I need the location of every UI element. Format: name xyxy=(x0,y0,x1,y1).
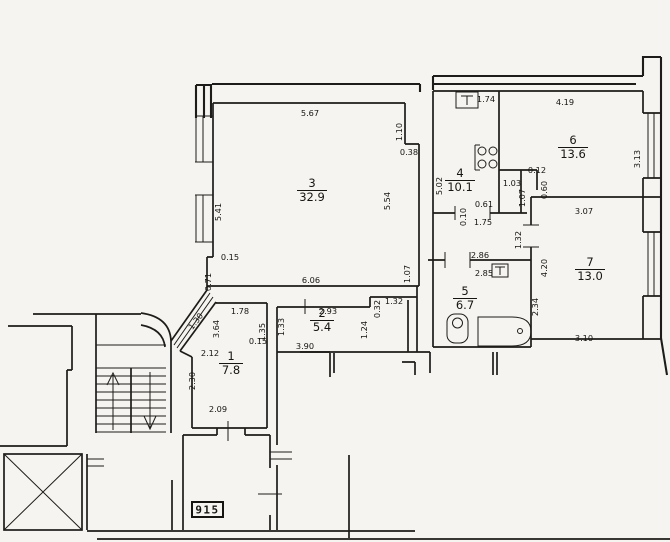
room-area-label: 6.7 xyxy=(456,298,474,312)
plan-number-stamp: 915 xyxy=(192,502,223,517)
room-area-label: 10.1 xyxy=(447,180,473,194)
dimension-label: 2.86 xyxy=(471,250,489,260)
elevator-cross xyxy=(4,454,82,530)
dimension-label: 5.54 xyxy=(382,192,392,210)
stair-up-arrow xyxy=(107,373,119,430)
dimension-label: 6.06 xyxy=(302,275,320,285)
stairwell-and-bottom-walls xyxy=(0,314,670,539)
room-number-label: 6 xyxy=(569,133,576,147)
dimension-label: 3.07 xyxy=(575,206,593,216)
dimension-label: 0.15 xyxy=(249,336,267,346)
bathtub-drain xyxy=(518,329,523,334)
dimension-label: 1.07 xyxy=(517,189,527,207)
room-number-label: 4 xyxy=(456,166,463,180)
dimension-label: 0.12 xyxy=(528,165,546,175)
dimension-label: 4.20 xyxy=(539,259,549,277)
dimension-label: 1.03 xyxy=(503,178,521,188)
staircase xyxy=(96,314,171,433)
room-area-label: 13.0 xyxy=(577,269,603,283)
dimension-label: 3.10 xyxy=(575,333,593,343)
dimension-label: 1.24 xyxy=(359,321,369,339)
room-number-label: 1 xyxy=(227,349,234,363)
dimension-label: 2.34 xyxy=(530,298,540,316)
dimension-label: 0.10 xyxy=(458,208,468,226)
room-number-label: 5 xyxy=(461,284,468,298)
dimension-label: 3.90 xyxy=(296,341,314,351)
dimension-label: 5.02 xyxy=(434,177,444,195)
room-area-label: 13.6 xyxy=(560,147,586,161)
dimension-label: 1.10 xyxy=(394,123,404,141)
window-symbols-right xyxy=(648,113,654,296)
room-number-label: 3 xyxy=(308,176,315,190)
stair-walls xyxy=(96,314,171,433)
dimension-label: 2.30 xyxy=(187,372,197,390)
dimension-label: 0.38 xyxy=(400,147,418,157)
window-symbols-left xyxy=(195,116,213,242)
dimension-label: 2.85 xyxy=(475,268,493,278)
dimension-label: 0.71 xyxy=(203,273,213,291)
dimension-label: 0.15 xyxy=(221,252,239,262)
floor-plan-scan: 915 5.671.100.385.415.540.150.716.061.07… xyxy=(0,0,670,542)
stove-burner xyxy=(489,160,497,168)
dimension-label: 2.09 xyxy=(209,404,227,414)
labels-layer: 5.671.100.385.415.540.150.716.061.071.74… xyxy=(186,94,642,414)
vent-shaft-glyph xyxy=(461,96,473,105)
toilet-tank xyxy=(453,318,463,328)
dimension-label: 3.64 xyxy=(211,320,221,338)
dimension-label: 0.32 xyxy=(372,300,382,318)
elevator-shaft xyxy=(4,454,82,530)
room-number-label: 7 xyxy=(586,255,593,269)
dimension-label: 0.61 xyxy=(475,199,493,209)
vent-shaft-glyph xyxy=(495,267,505,275)
stove-burner xyxy=(478,160,486,168)
stove-burner xyxy=(478,147,486,155)
dimension-label: 1.75 xyxy=(474,217,492,227)
dimension-label: 4.19 xyxy=(556,97,574,107)
dimension-label: 1.32 xyxy=(513,231,523,249)
room-number-label: 2 xyxy=(318,306,325,320)
dimension-label: 3.13 xyxy=(632,150,642,168)
room-area-label: 32.9 xyxy=(299,190,325,204)
stove-burner xyxy=(489,147,497,155)
dimension-label: 0.60 xyxy=(539,181,549,199)
stamp-number: 915 xyxy=(195,504,219,517)
dimension-label: 2.12 xyxy=(201,348,219,358)
dimension-label: 5.41 xyxy=(213,203,223,221)
bathtub-icon xyxy=(478,317,531,346)
dimension-label: 1.74 xyxy=(477,94,495,104)
floor-plan-canvas: 915 5.671.100.385.415.540.150.716.061.07… xyxy=(0,0,670,542)
dimension-label: 1.07 xyxy=(402,265,412,283)
room-area-label: 7.8 xyxy=(222,363,240,377)
dimension-label: 1.32 xyxy=(385,296,403,306)
dimension-label: 5.67 xyxy=(301,108,319,118)
dimension-label: 1.78 xyxy=(231,306,249,316)
dimension-label: 1.33 xyxy=(276,318,286,336)
room-area-label: 5.4 xyxy=(313,320,331,334)
